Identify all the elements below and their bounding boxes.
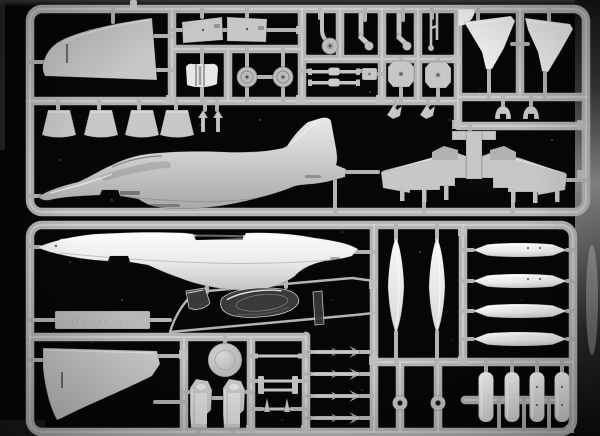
part-mainwheel-left xyxy=(237,67,257,87)
wing-center-cutout xyxy=(457,179,491,191)
sprue-photo-canvas: 1/72 BAe HAWK 1/72 BAe HAWK xyxy=(0,0,600,436)
sprue-gate-nub xyxy=(130,0,137,10)
part-windscreen-clear xyxy=(186,288,210,309)
nameplate-embossed-text: 1/72 BAe HAWK xyxy=(65,317,140,325)
part-intake-splitter xyxy=(186,64,218,87)
part-exhaust-nozzle-a xyxy=(388,61,414,87)
part-nameplate: 1/72 BAe HAWK 1/72 BAe HAWK xyxy=(55,311,150,329)
part-hub-disc-b xyxy=(431,396,446,411)
part-hub-disc-a xyxy=(393,396,408,411)
intake-slot xyxy=(120,191,140,195)
part-mainwheel-right xyxy=(273,67,293,87)
part-exhaust-nozzle-b xyxy=(425,62,451,88)
part-fuselage-insert-b xyxy=(227,17,267,42)
cockpit-opening xyxy=(196,234,243,240)
photo-model-kit-sprues: Photograph of two grey/white injection-m… xyxy=(0,0,600,436)
part-coupler-block xyxy=(362,68,377,80)
part-canopy-strut-clear xyxy=(313,291,324,325)
part-wheel-hub-disc xyxy=(208,343,242,377)
